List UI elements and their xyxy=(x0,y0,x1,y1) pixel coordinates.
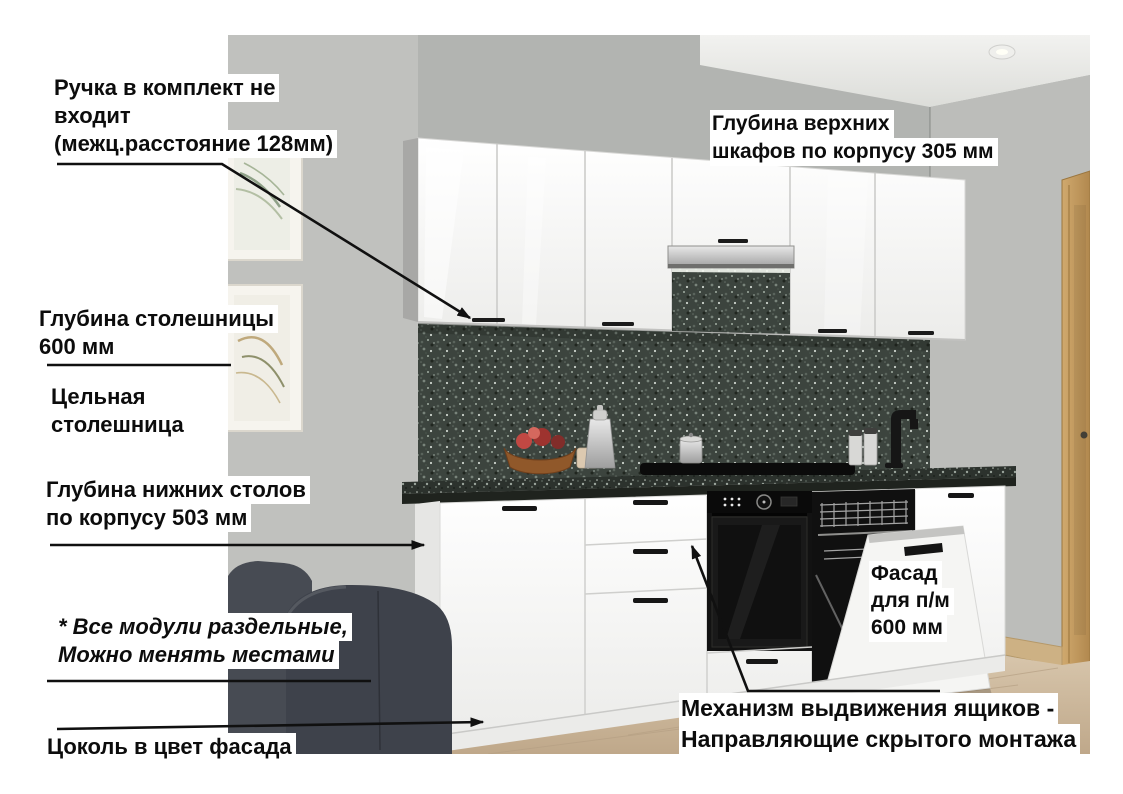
annotation-line: Направляющие скрытого монтажа xyxy=(679,724,1080,755)
annotation-countertop-depth: Глубина столешницы 600 мм xyxy=(37,305,278,361)
wall-picture-top xyxy=(228,148,302,260)
annotation-upper-cabinet-depth: Глубина верхних шкафов по корпусу 305 мм xyxy=(710,110,998,166)
drawer-handle xyxy=(633,549,668,554)
cooker-hood xyxy=(668,246,794,268)
cabinet-handle xyxy=(818,329,847,333)
cabinet-handle xyxy=(472,318,505,322)
drawer-handle xyxy=(633,598,668,603)
annotation-base-cabinet-depth: Глубина нижних столов по корпусу 503 мм xyxy=(44,476,310,532)
cocktail-shaker xyxy=(585,419,615,468)
annotation-line: шкафов по корпусу 305 мм xyxy=(710,138,998,166)
annotation-line: Ручка в комплект не xyxy=(52,74,279,102)
cabinet-handle xyxy=(502,506,537,511)
drawer-handle xyxy=(746,659,778,664)
annotation-solid-countertop: Цельная столешница xyxy=(49,383,188,439)
annotation-line: Цельная xyxy=(49,383,149,411)
cabinet-handle xyxy=(602,322,634,326)
annotation-plinth-note: Цоколь в цвет фасада xyxy=(45,733,296,761)
annotation-line: по корпусу 503 мм xyxy=(44,504,251,532)
pot xyxy=(680,439,702,463)
built-in-oven xyxy=(707,491,812,664)
annotation-line: 600 мм xyxy=(869,615,947,642)
annotation-line: 600 мм xyxy=(37,333,118,361)
annotation-line: для п/м xyxy=(869,588,954,615)
annotation-handle-note: Ручка в комплект не входит (межц.расстоя… xyxy=(52,74,337,158)
product-annotation-page: Ручка в комплект не входит (межц.расстоя… xyxy=(0,0,1123,794)
annotation-line: Глубина столешницы xyxy=(37,305,278,333)
annotation-line: (межц.расстояние 128мм) xyxy=(52,130,337,158)
annotation-modules-note: * Все модули раздельные, Можно менять ме… xyxy=(56,613,352,669)
canister xyxy=(849,434,862,465)
annotation-line: столешница xyxy=(49,411,188,439)
drawer-handle xyxy=(633,500,668,505)
hob xyxy=(640,463,855,475)
wooden-door xyxy=(1062,171,1090,666)
annotation-line: Можно менять местами xyxy=(56,641,339,669)
cabinet-handle xyxy=(718,239,748,243)
annotation-line: Глубина нижних столов xyxy=(44,476,310,504)
annotation-line: Механизм выдвижения ящиков - xyxy=(679,693,1058,724)
annotation-line: Цоколь в цвет фасада xyxy=(45,733,296,761)
annotation-drawer-mechanism: Механизм выдвижения ящиков - Направляющи… xyxy=(679,693,1080,755)
annotation-line: * Все модули раздельные, xyxy=(56,613,352,641)
annotation-line: входит xyxy=(52,102,135,130)
annotation-line: Глубина верхних xyxy=(710,110,894,138)
cabinet-handle xyxy=(948,493,974,498)
annotation-line: Фасад xyxy=(869,561,942,588)
cabinet-handle xyxy=(908,331,934,335)
annotation-dishwasher-facade: Фасад для п/м 600 мм xyxy=(869,561,954,642)
upper-side-panel xyxy=(403,138,418,322)
canister xyxy=(864,432,877,465)
